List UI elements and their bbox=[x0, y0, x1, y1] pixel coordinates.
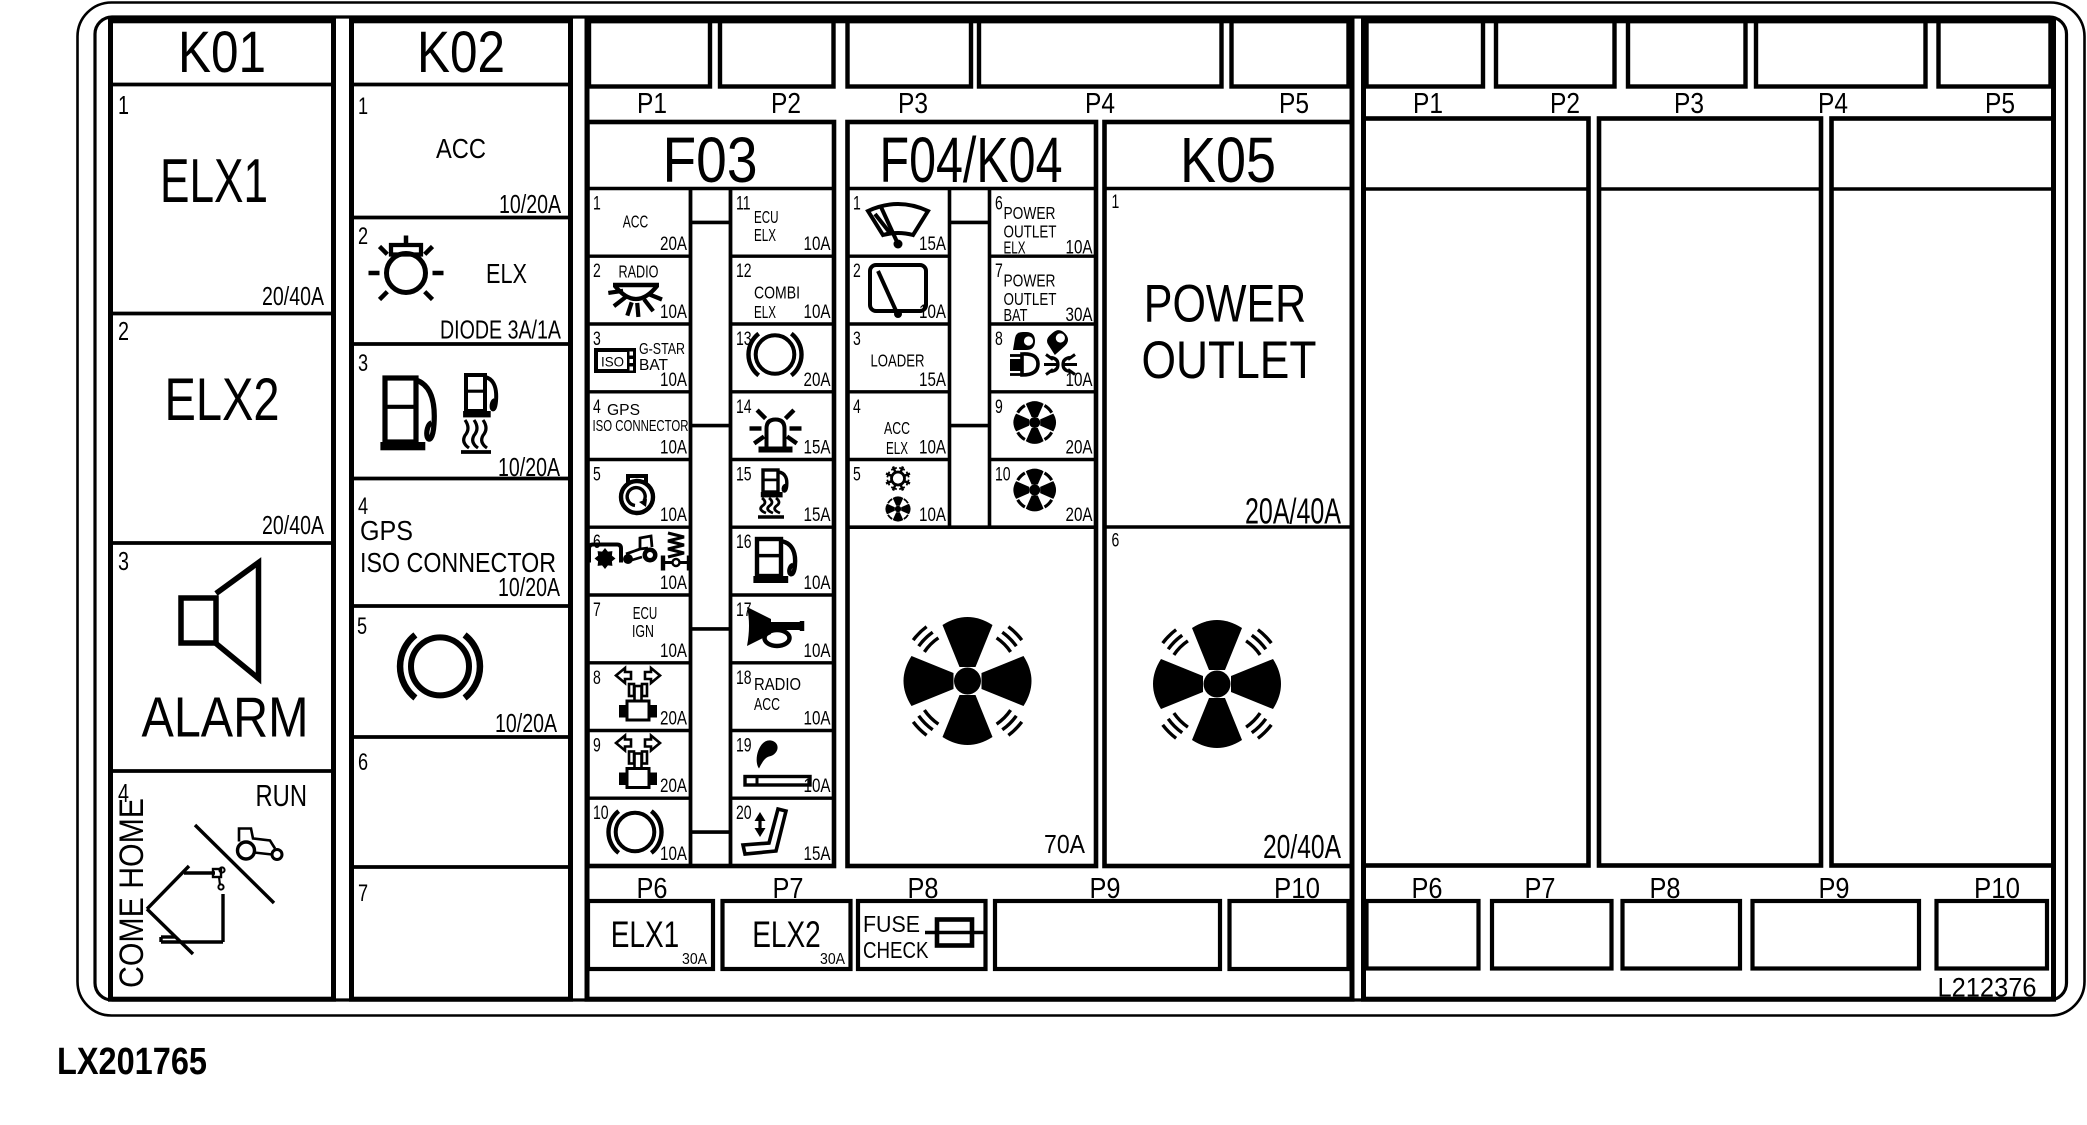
svg-text:7: 7 bbox=[358, 880, 368, 907]
svg-text:POWER: POWER bbox=[1144, 275, 1307, 334]
svg-text:ELX1: ELX1 bbox=[160, 147, 268, 216]
svg-text:15: 15 bbox=[736, 464, 752, 486]
svg-text:10A: 10A bbox=[919, 301, 946, 323]
svg-text:2: 2 bbox=[593, 260, 601, 282]
svg-text:ACC: ACC bbox=[623, 212, 649, 232]
svg-text:2: 2 bbox=[853, 260, 861, 282]
svg-text:IGN: IGN bbox=[632, 621, 654, 641]
svg-text:10A: 10A bbox=[804, 233, 831, 255]
svg-text:10A: 10A bbox=[660, 572, 687, 594]
svg-text:P1: P1 bbox=[637, 88, 667, 120]
svg-text:20A: 20A bbox=[1066, 437, 1093, 459]
svg-text:LX201765: LX201765 bbox=[57, 1041, 207, 1083]
svg-text:20A: 20A bbox=[660, 708, 687, 730]
svg-text:10A: 10A bbox=[660, 843, 687, 865]
svg-text:10A: 10A bbox=[919, 437, 946, 459]
svg-text:6: 6 bbox=[593, 531, 601, 553]
svg-text:10/20A: 10/20A bbox=[499, 191, 561, 219]
svg-text:P3: P3 bbox=[1674, 88, 1704, 120]
svg-text:GPS: GPS bbox=[607, 402, 640, 419]
svg-text:10/20A: 10/20A bbox=[495, 710, 557, 738]
svg-text:8: 8 bbox=[593, 667, 601, 689]
svg-text:GPS: GPS bbox=[360, 515, 413, 546]
svg-text:ALARM: ALARM bbox=[142, 686, 309, 750]
svg-text:P4: P4 bbox=[1085, 88, 1115, 120]
svg-text:30A: 30A bbox=[1066, 304, 1093, 326]
svg-text:20A: 20A bbox=[660, 775, 687, 797]
svg-text:20A/40A: 20A/40A bbox=[1245, 491, 1341, 532]
svg-text:K05: K05 bbox=[1180, 124, 1276, 196]
svg-text:10: 10 bbox=[995, 464, 1011, 486]
svg-text:10/20A: 10/20A bbox=[498, 574, 560, 602]
svg-text:COMBI: COMBI bbox=[754, 283, 800, 303]
svg-text:POWER: POWER bbox=[1004, 203, 1056, 223]
svg-text:P4: P4 bbox=[1818, 88, 1848, 120]
svg-text:1: 1 bbox=[853, 193, 861, 215]
svg-text:5: 5 bbox=[853, 464, 861, 486]
svg-text:1: 1 bbox=[593, 193, 601, 215]
svg-text:ACC: ACC bbox=[884, 418, 910, 438]
svg-text:OUTLET: OUTLET bbox=[1142, 331, 1317, 390]
svg-text:20A: 20A bbox=[660, 233, 687, 255]
svg-text:70A: 70A bbox=[1044, 829, 1086, 859]
svg-text:ELX2: ELX2 bbox=[752, 914, 821, 955]
svg-text:8: 8 bbox=[995, 328, 1003, 350]
svg-text:10A: 10A bbox=[804, 301, 831, 323]
svg-text:10A: 10A bbox=[660, 504, 687, 526]
svg-text:7: 7 bbox=[995, 260, 1003, 282]
svg-text:ELX: ELX bbox=[886, 438, 908, 458]
svg-text:FUSE: FUSE bbox=[863, 911, 920, 937]
svg-text:10/20A: 10/20A bbox=[498, 454, 560, 482]
svg-text:10A: 10A bbox=[660, 301, 687, 323]
svg-text:11: 11 bbox=[736, 193, 751, 215]
svg-text:20/40A: 20/40A bbox=[262, 512, 324, 540]
svg-text:7: 7 bbox=[593, 599, 601, 621]
svg-text:4: 4 bbox=[593, 396, 601, 418]
svg-text:20A: 20A bbox=[1066, 504, 1093, 526]
svg-text:14: 14 bbox=[736, 396, 752, 418]
svg-text:DIODE 3A/1A: DIODE 3A/1A bbox=[440, 317, 561, 345]
svg-text:ISO CONNECTOR: ISO CONNECTOR bbox=[593, 418, 689, 435]
svg-text:P3: P3 bbox=[898, 88, 928, 120]
svg-text:12: 12 bbox=[736, 260, 752, 282]
svg-text:L212376: L212376 bbox=[1938, 973, 2037, 1003]
svg-text:ACC: ACC bbox=[754, 694, 780, 714]
svg-text:15A: 15A bbox=[804, 843, 831, 865]
svg-text:9: 9 bbox=[995, 396, 1003, 418]
svg-text:P5: P5 bbox=[1985, 88, 2015, 120]
svg-text:ECU: ECU bbox=[754, 207, 779, 227]
svg-text:10A: 10A bbox=[919, 504, 946, 526]
svg-text:POWER: POWER bbox=[1004, 271, 1056, 291]
svg-text:P1: P1 bbox=[1413, 88, 1443, 120]
svg-text:ELX: ELX bbox=[486, 258, 527, 289]
svg-text:ELX: ELX bbox=[754, 302, 776, 322]
svg-text:RADIO: RADIO bbox=[619, 262, 659, 282]
svg-text:CHECK: CHECK bbox=[863, 937, 929, 963]
svg-text:2: 2 bbox=[118, 316, 129, 346]
svg-text:3: 3 bbox=[118, 546, 129, 576]
svg-text:6: 6 bbox=[358, 749, 368, 776]
svg-text:10A: 10A bbox=[660, 369, 687, 391]
svg-text:9: 9 bbox=[593, 735, 601, 757]
svg-text:15A: 15A bbox=[919, 233, 946, 255]
svg-text:3: 3 bbox=[593, 328, 601, 350]
svg-text:10A: 10A bbox=[1066, 369, 1093, 391]
svg-text:K02: K02 bbox=[417, 20, 505, 85]
svg-text:RADIO: RADIO bbox=[754, 674, 801, 694]
svg-text:P2: P2 bbox=[1550, 88, 1580, 120]
svg-text:ISO: ISO bbox=[601, 354, 624, 370]
svg-text:3: 3 bbox=[853, 328, 861, 350]
svg-text:F04/K04: F04/K04 bbox=[880, 124, 1063, 196]
svg-text:15A: 15A bbox=[804, 504, 831, 526]
svg-text:K01: K01 bbox=[178, 20, 266, 85]
svg-text:COME HOME: COME HOME bbox=[113, 798, 151, 988]
svg-text:18: 18 bbox=[736, 667, 752, 689]
svg-text:30A: 30A bbox=[682, 951, 707, 968]
svg-text:2: 2 bbox=[358, 223, 368, 250]
svg-text:3: 3 bbox=[358, 350, 368, 377]
svg-text:1: 1 bbox=[118, 90, 129, 120]
svg-text:15A: 15A bbox=[919, 369, 946, 391]
svg-text:ELX: ELX bbox=[1004, 238, 1026, 258]
svg-text:6: 6 bbox=[995, 193, 1003, 215]
svg-text:19: 19 bbox=[736, 735, 752, 757]
svg-text:ELX2: ELX2 bbox=[165, 366, 280, 433]
svg-text:10A: 10A bbox=[660, 437, 687, 459]
svg-text:10: 10 bbox=[593, 802, 609, 824]
svg-text:10A: 10A bbox=[804, 775, 831, 797]
svg-text:20/40A: 20/40A bbox=[1263, 828, 1341, 865]
svg-text:15A: 15A bbox=[804, 437, 831, 459]
svg-text:30A: 30A bbox=[820, 951, 845, 968]
svg-text:16: 16 bbox=[736, 531, 752, 553]
svg-text:1: 1 bbox=[358, 93, 368, 120]
svg-text:10A: 10A bbox=[804, 572, 831, 594]
svg-text:ACC: ACC bbox=[436, 133, 486, 164]
svg-text:10A: 10A bbox=[1066, 237, 1093, 259]
svg-text:G-STAR: G-STAR bbox=[639, 341, 685, 358]
svg-text:20: 20 bbox=[736, 802, 752, 824]
svg-text:20/40A: 20/40A bbox=[262, 283, 324, 311]
svg-text:6: 6 bbox=[1112, 530, 1120, 552]
svg-text:10A: 10A bbox=[660, 640, 687, 662]
svg-text:4: 4 bbox=[853, 396, 861, 418]
svg-text:5: 5 bbox=[357, 613, 367, 640]
svg-text:5: 5 bbox=[593, 464, 601, 486]
svg-text:P2: P2 bbox=[771, 88, 801, 120]
svg-text:BAT: BAT bbox=[1004, 305, 1028, 325]
svg-text:1: 1 bbox=[1112, 191, 1120, 213]
svg-text:10A: 10A bbox=[804, 640, 831, 662]
svg-text:LOADER: LOADER bbox=[871, 351, 925, 371]
svg-text:ELX1: ELX1 bbox=[611, 914, 680, 955]
svg-text:20A: 20A bbox=[804, 369, 831, 391]
svg-text:ELX: ELX bbox=[754, 225, 776, 245]
svg-text:F03: F03 bbox=[663, 124, 758, 196]
svg-text:RUN: RUN bbox=[256, 778, 308, 813]
svg-text:ECU: ECU bbox=[633, 603, 658, 623]
svg-text:P5: P5 bbox=[1279, 88, 1309, 120]
svg-text:10A: 10A bbox=[804, 708, 831, 730]
